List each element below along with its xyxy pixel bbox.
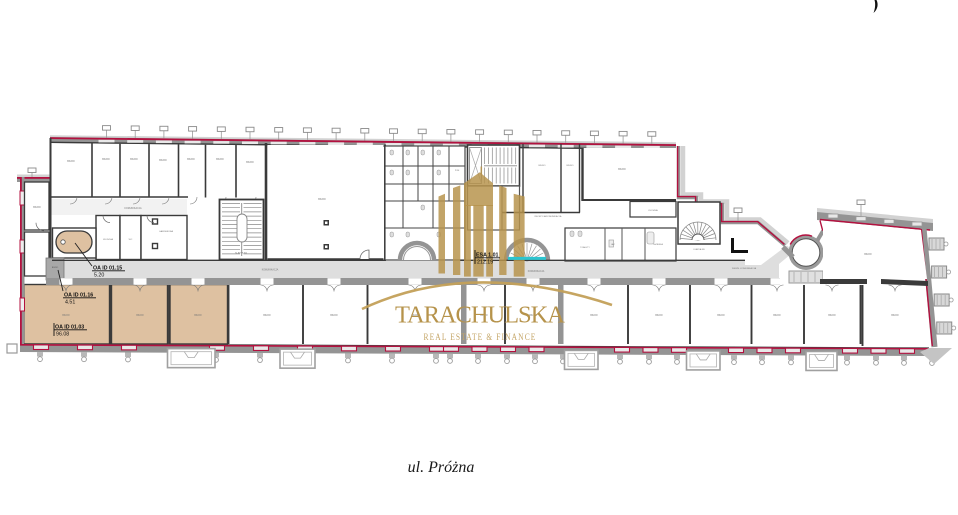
svg-text:KOMUNIKACJA: KOMUNIKACJA (528, 270, 545, 273)
svg-text:BIURO: BIURO (194, 315, 201, 317)
svg-text:BIURO: BIURO (590, 315, 597, 317)
svg-text:BIURO: BIURO (33, 206, 41, 209)
svg-text:TOALETY: TOALETY (580, 246, 590, 249)
svg-text:REAL ESTATE & FINANCE: REAL ESTATE & FINANCE (424, 333, 537, 343)
svg-text:BIURO: BIURO (246, 161, 254, 164)
svg-text:BIURO: BIURO (130, 158, 138, 161)
svg-text:BIURO: BIURO (263, 315, 270, 317)
svg-text:LAZIENKA: LAZIENKA (653, 243, 663, 246)
svg-text:KOMUNIKACJA: KOMUNIKACJA (262, 269, 279, 272)
svg-text:WEWN. KOMUNIKACJA: WEWN. KOMUNIKACJA (732, 267, 757, 270)
svg-text:BIURO: BIURO (773, 315, 780, 317)
svg-text:BIURO: BIURO (67, 160, 75, 163)
svg-text:BIURO: BIURO (618, 168, 626, 171)
svg-text:GARDEROBA: GARDEROBA (159, 230, 174, 233)
svg-text:RECEPCJA/KOMUNIKACJA: RECEPCJA/KOMUNIKACJA (535, 215, 562, 218)
svg-text:96.08: 96.08 (56, 332, 69, 338)
svg-text:WC: WC (129, 239, 133, 241)
svg-text:4.51: 4.51 (65, 300, 75, 306)
svg-text:BIURO: BIURO (717, 315, 724, 317)
svg-text:LAZ.: LAZ. (611, 243, 616, 246)
svg-text:BIURO: BIURO (891, 315, 898, 317)
svg-text:BIURO: BIURO (655, 315, 662, 317)
svg-text:KLATKA KB: KLATKA KB (235, 252, 247, 255)
svg-text:KLATKA KB: KLATKA KB (693, 248, 705, 251)
svg-text:BIURO: BIURO (330, 315, 337, 317)
svg-text:BIURO: BIURO (159, 159, 167, 162)
svg-text:BIURO: BIURO (318, 198, 326, 201)
svg-text:BIURO: BIURO (216, 158, 224, 161)
svg-text:BIURO: BIURO (539, 165, 546, 167)
svg-text:BIURO: BIURO (62, 315, 69, 317)
svg-text:BIURO: BIURO (828, 315, 835, 317)
svg-text:212.19: 212.19 (477, 260, 493, 266)
svg-text:POM: POM (455, 170, 460, 172)
svg-text:BIURO: BIURO (52, 267, 59, 269)
svg-text:BIURO: BIURO (864, 254, 871, 256)
svg-text:BIURO: BIURO (102, 158, 110, 161)
svg-text:ul. Próżna: ul. Próżna (408, 459, 475, 476)
svg-text:BIURO: BIURO (567, 165, 574, 167)
svg-text:KOMUNIKACJA: KOMUNIKACJA (124, 207, 142, 210)
svg-text:5.20: 5.20 (94, 273, 104, 279)
svg-text:TARACHULSKA: TARACHULSKA (395, 302, 565, 329)
svg-text:KUCHNIA: KUCHNIA (648, 209, 658, 212)
svg-text:KUCHNIA: KUCHNIA (103, 238, 113, 241)
svg-text:BIURO: BIURO (187, 158, 195, 161)
svg-text:BIURO: BIURO (136, 315, 143, 317)
